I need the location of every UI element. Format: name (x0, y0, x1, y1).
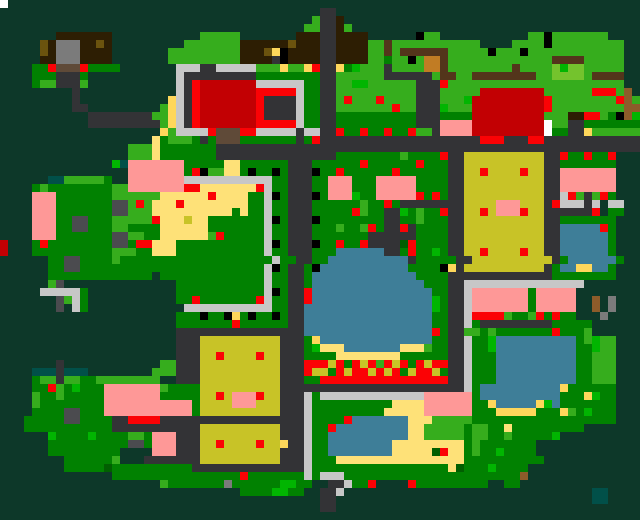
village-map-canvas (0, 0, 640, 520)
village-map (0, 0, 640, 520)
